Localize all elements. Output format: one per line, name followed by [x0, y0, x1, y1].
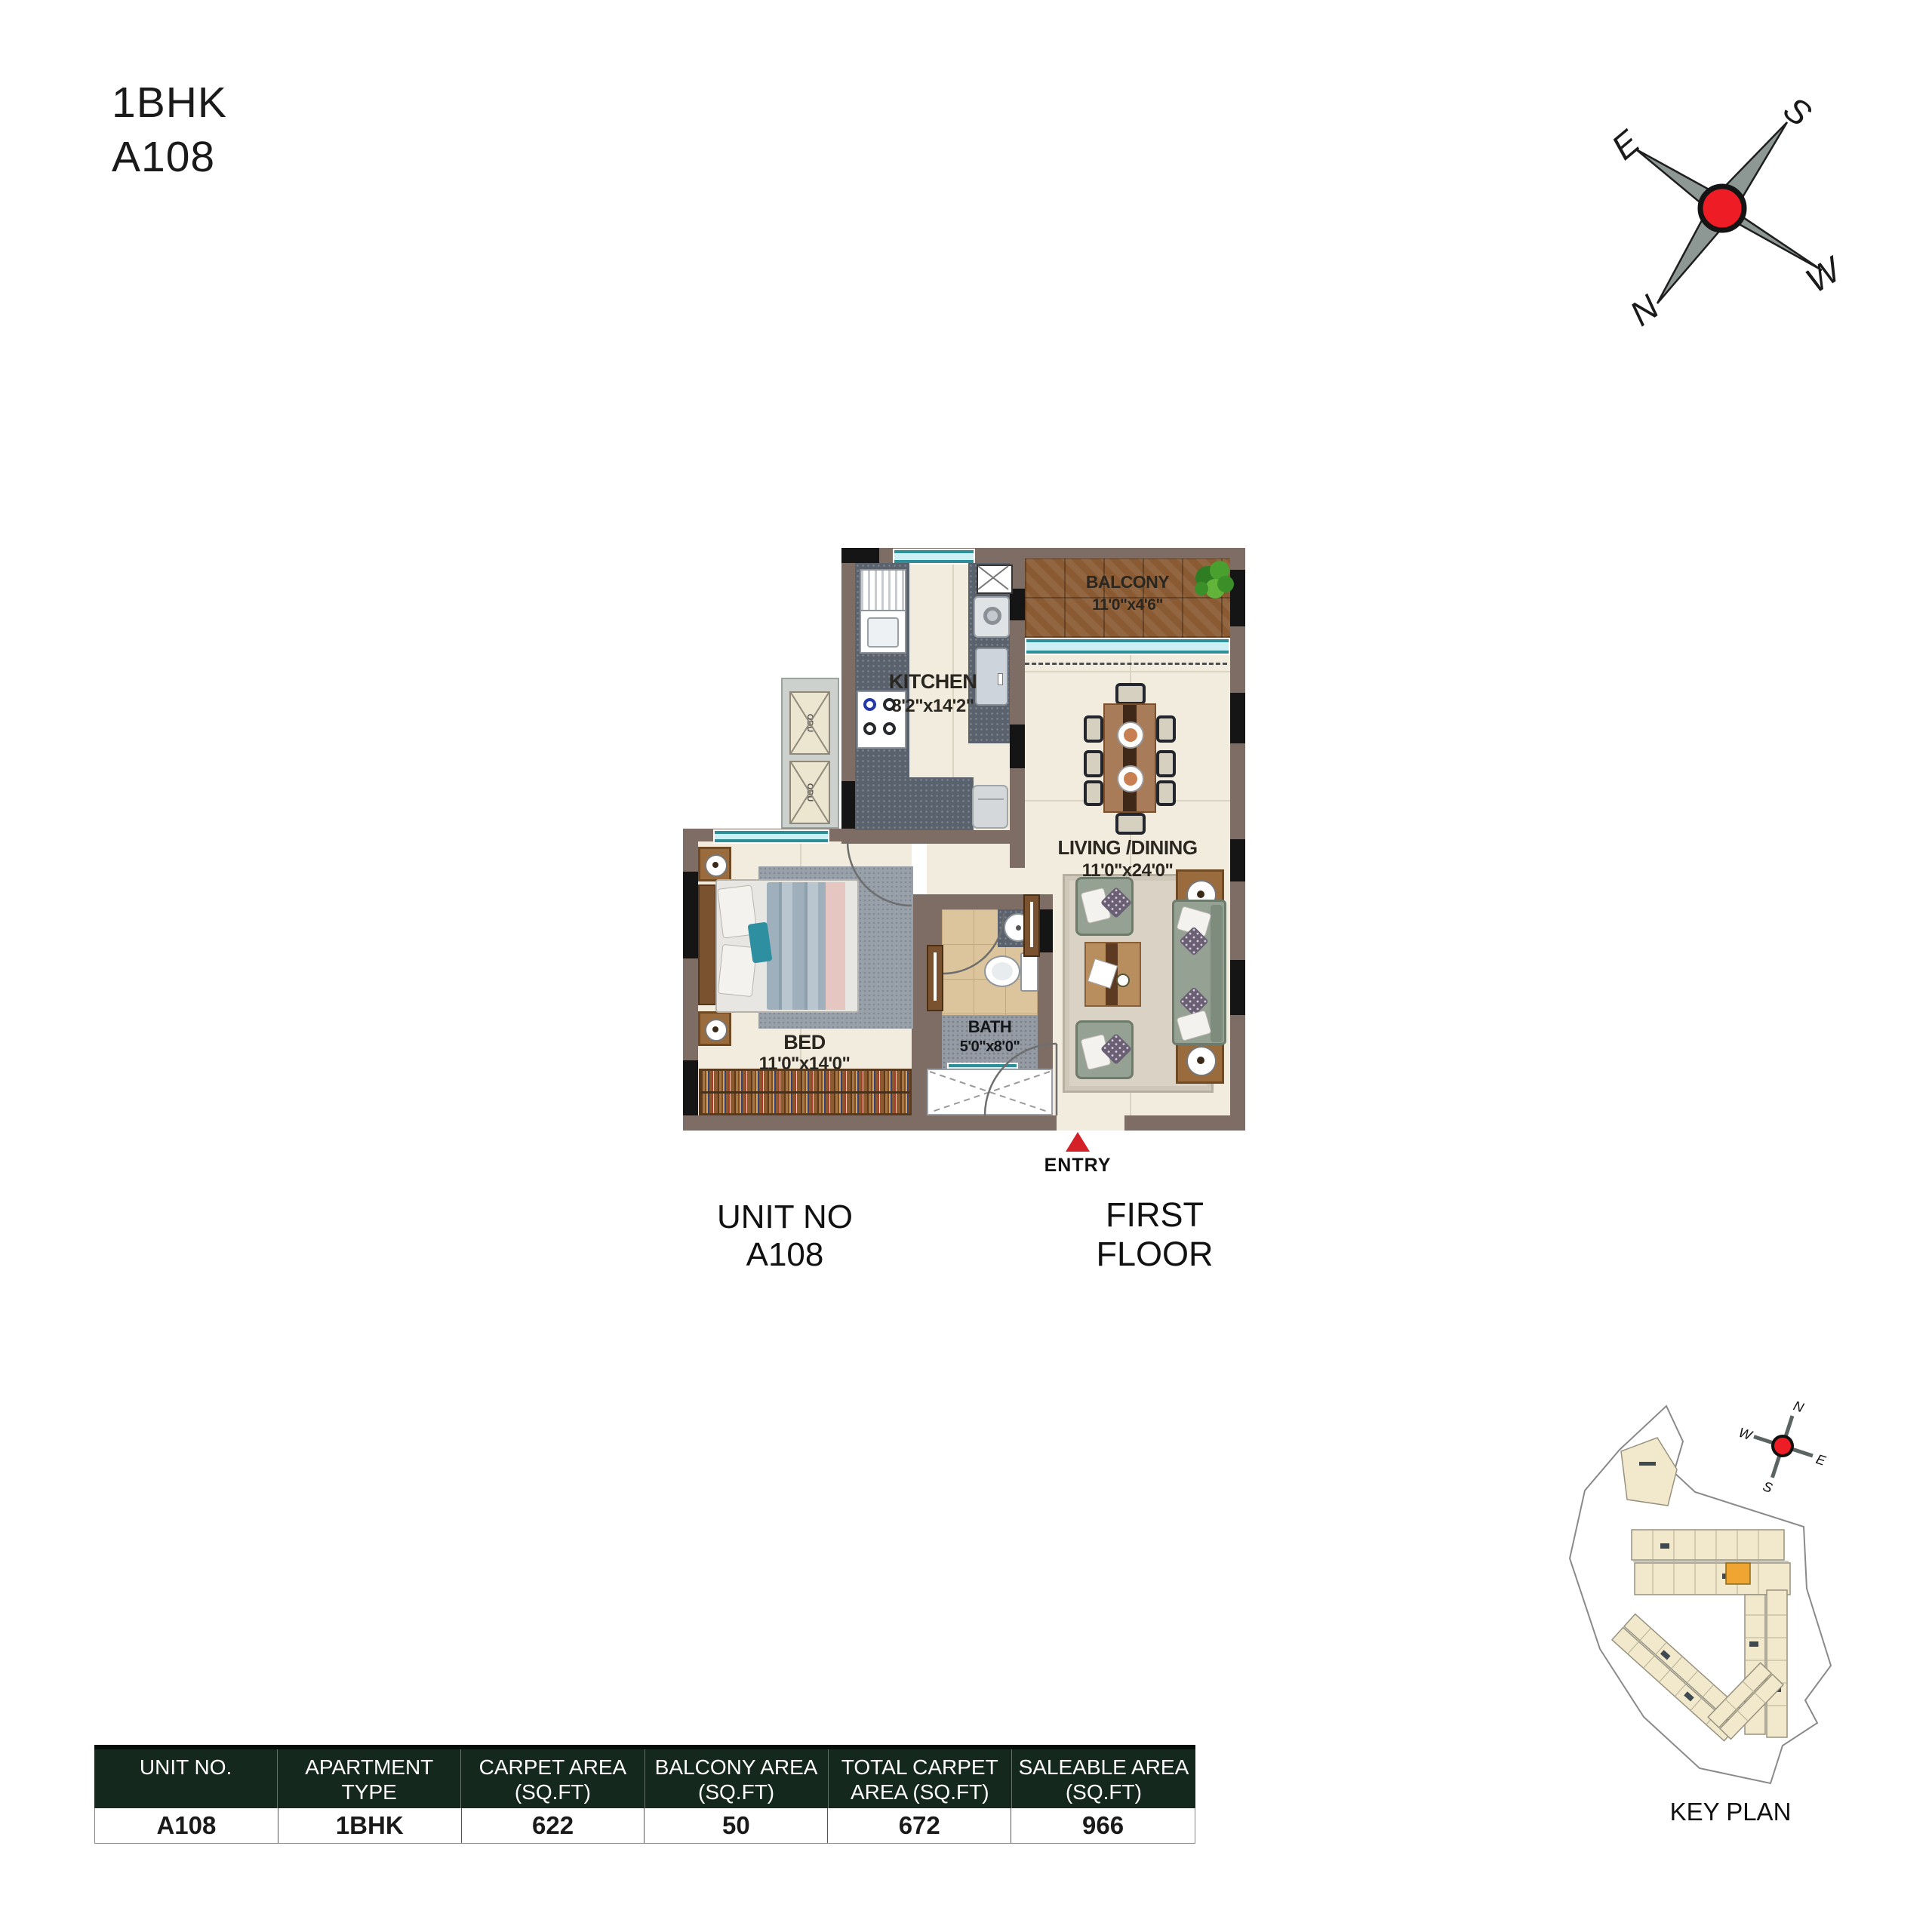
- keyplan-caption: KEY PLAN: [1617, 1798, 1844, 1826]
- key-plan: N E S W: [1555, 1400, 1894, 1789]
- floor-caption: FIRST FLOOR: [1053, 1195, 1257, 1274]
- keyplan-compass: N E S W: [1723, 1400, 1841, 1509]
- room-dims-living: 11'0"x24'0": [1037, 860, 1218, 881]
- header-unit-no: UNIT NO.: [94, 1749, 278, 1808]
- room-label-balcony: BALCONY: [1052, 572, 1203, 592]
- title-type: 1BHK: [112, 75, 227, 130]
- cell-unit-no: A108: [95, 1808, 278, 1843]
- room-dims-bath: 5'0"x8'0": [943, 1038, 1036, 1056]
- room-label-bath: BATH: [943, 1017, 1036, 1037]
- cell-total-carpet-area: 672: [828, 1808, 1011, 1843]
- compass-center: [1700, 186, 1744, 230]
- header-apartment-type: APARTMENT TYPE: [278, 1749, 461, 1808]
- room-label-kitchen: KITCHEN: [861, 670, 1004, 694]
- cell-saleable-area: 966: [1011, 1808, 1195, 1843]
- keyplan-building: [1767, 1590, 1787, 1737]
- room-dims-bed: 11'0"x14'0": [729, 1054, 880, 1075]
- cell-carpet-area: 622: [462, 1808, 645, 1843]
- area-table-header: UNIT NO. APARTMENT TYPE CARPET AREA (SQ.…: [94, 1745, 1195, 1808]
- header-saleable-area: SALEABLE AREA (SQ.FT): [1012, 1749, 1195, 1808]
- compass-rose: S E W N: [1607, 75, 1864, 347]
- bath-door-arc: [943, 913, 1004, 974]
- keyplan-building: [1632, 1530, 1784, 1560]
- unit-caption: UNIT NO A108: [679, 1198, 891, 1274]
- entry-arrow-icon: [1066, 1132, 1090, 1152]
- room-label-living: LIVING /DINING: [1037, 836, 1218, 860]
- bedroom-door-arc: [848, 841, 912, 906]
- cell-balcony-area: 50: [645, 1808, 828, 1843]
- keyplan-compass-e: E: [1814, 1451, 1829, 1469]
- entry-label: ENTRY: [1032, 1155, 1123, 1177]
- keyplan-compass-n: N: [1792, 1400, 1806, 1416]
- keyplan-compass-w: W: [1737, 1425, 1755, 1444]
- area-table-row: A108 1BHK 622 50 672 966: [94, 1808, 1195, 1844]
- area-table: UNIT NO. APARTMENT TYPE CARPET AREA (SQ.…: [94, 1745, 1195, 1844]
- room-dims-balcony: 11'0"x4'6": [1052, 596, 1203, 614]
- compass-letter-e: E: [1607, 122, 1647, 167]
- room-dims-kitchen: 8'2"x14'2": [861, 696, 1004, 717]
- room-label-bed: BED: [729, 1031, 880, 1054]
- keyplan-highlight-unit: [1726, 1563, 1750, 1584]
- header-total-carpet-area: TOTAL CARPET AREA (SQ.FT): [829, 1749, 1012, 1808]
- keyplan-compass-s: S: [1761, 1478, 1774, 1496]
- compass-letter-n: N: [1623, 287, 1666, 334]
- title-unit: A108: [112, 130, 227, 184]
- cell-apartment-type: 1BHK: [278, 1808, 462, 1843]
- compass-letter-w: W: [1798, 248, 1850, 300]
- page-title: 1BHK A108: [112, 75, 227, 184]
- header-balcony-area: BALCONY AREA (SQ.FT): [645, 1749, 829, 1808]
- header-carpet-area: CARPET AREA (SQ.FT): [461, 1749, 645, 1808]
